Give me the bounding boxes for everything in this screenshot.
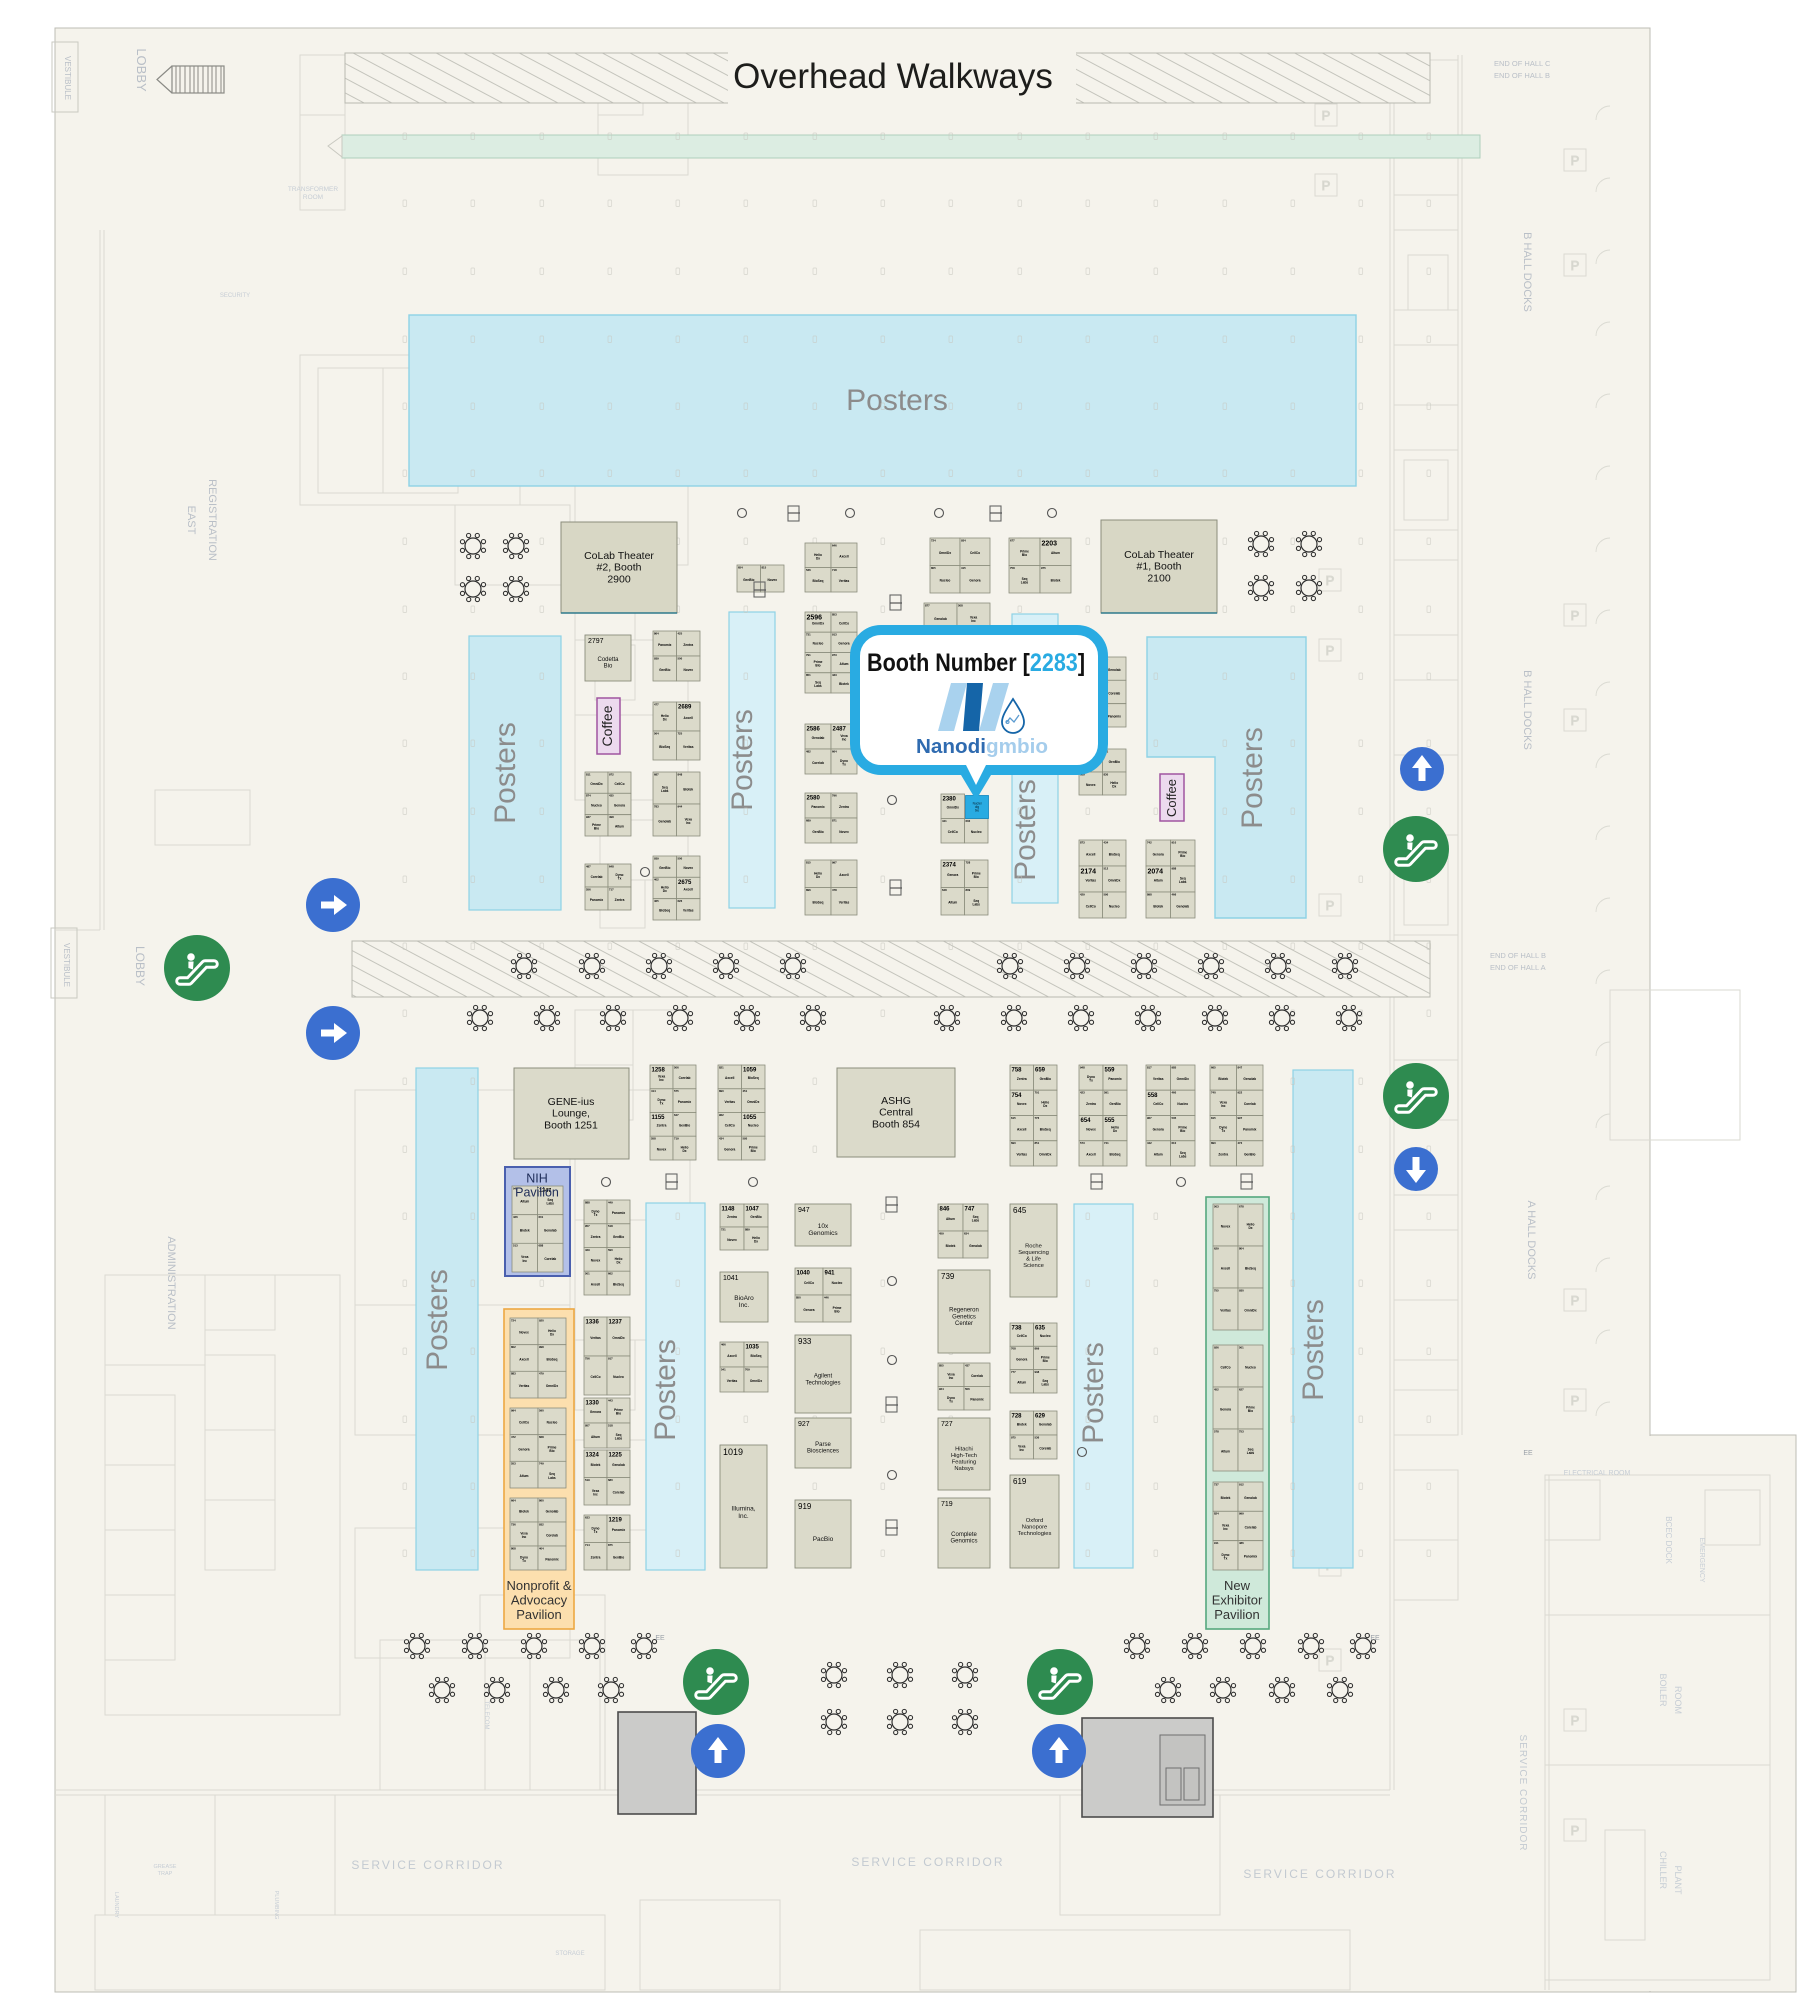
svg-text:CellCo: CellCo [1086, 904, 1096, 908]
svg-text:#2, Booth: #2, Booth [597, 562, 642, 574]
svg-text:741: 741 [1104, 1141, 1109, 1145]
svg-text:Dx: Dx [550, 1332, 554, 1336]
svg-text:A HALL DOCKS: A HALL DOCKS [1525, 1200, 1537, 1279]
svg-text:Altum: Altum [1051, 551, 1060, 555]
svg-text:OmniDx: OmniDx [612, 1336, 624, 1340]
svg-text:851: 851 [806, 673, 811, 677]
svg-text:Labs: Labs [547, 1201, 555, 1205]
svg-text:967: 967 [1147, 1116, 1152, 1120]
svg-text:GENE-ius: GENE-ius [548, 1096, 595, 1108]
svg-text:P: P [1326, 898, 1335, 913]
svg-text:482: 482 [806, 749, 811, 753]
svg-text:2797: 2797 [588, 638, 604, 645]
svg-text:Nucleo: Nucleo [613, 1375, 624, 1379]
svg-text:500: 500 [678, 656, 683, 660]
svg-text:873: 873 [1080, 840, 1085, 844]
svg-text:487: 487 [586, 864, 591, 868]
svg-text:BOILER: BOILER [1658, 1673, 1668, 1707]
svg-text:Labs: Labs [972, 1219, 980, 1223]
svg-text:758: 758 [1010, 566, 1015, 570]
svg-text:680: 680 [608, 1478, 613, 1482]
svg-text:CellCo: CellCo [614, 782, 624, 786]
svg-text:Altum: Altum [1154, 878, 1163, 882]
svg-text:437: 437 [965, 1363, 970, 1367]
svg-text:2074: 2074 [1148, 869, 1164, 876]
svg-text:601: 601 [539, 1215, 544, 1219]
svg-text:Bio: Bio [594, 826, 599, 830]
svg-text:High-Tech: High-Tech [951, 1453, 977, 1459]
svg-text:VESTIBULE: VESTIBULE [63, 56, 72, 100]
svg-text:Nucleo: Nucleo [748, 1124, 759, 1128]
svg-text:477: 477 [654, 702, 659, 706]
svg-text:Booth Number [2283]: Booth Number [2283] [867, 649, 1085, 677]
svg-text:#1, Booth: #1, Booth [1137, 561, 1182, 573]
svg-text:Genomics: Genomics [808, 1230, 838, 1237]
svg-text:Posters: Posters [489, 722, 522, 824]
svg-text:Genolab: Genolab [1243, 1077, 1256, 1081]
svg-text:709: 709 [745, 1367, 750, 1371]
svg-text:Axcell: Axcell [725, 1076, 735, 1080]
svg-text:1330: 1330 [586, 1401, 600, 1407]
svg-text:Axcell: Axcell [1086, 852, 1096, 856]
svg-text:Posters: Posters [421, 1269, 454, 1371]
svg-text:PLANT: PLANT [1673, 1865, 1683, 1895]
svg-text:Genolab: Genolab [1039, 1422, 1052, 1426]
svg-text:948: 948 [1080, 1065, 1085, 1069]
svg-text:423: 423 [1080, 1091, 1085, 1095]
svg-text:OmniDx: OmniDx [747, 1100, 759, 1104]
svg-text:Novex: Novex [519, 1331, 529, 1335]
svg-text:Nucleo: Nucleo [1109, 904, 1120, 908]
svg-text:GenBio: GenBio [659, 668, 670, 672]
svg-text:442: 442 [1147, 1141, 1152, 1145]
svg-text:910: 910 [1172, 840, 1177, 844]
svg-text:B HALL DOCKS: B HALL DOCKS [1521, 232, 1533, 312]
svg-text:648: 648 [609, 864, 614, 868]
svg-text:615: 615 [1011, 1116, 1016, 1120]
svg-text:Panomix: Panomix [590, 898, 604, 902]
svg-text:Axcell: Axcell [839, 873, 849, 877]
svg-text:Labs: Labs [661, 789, 669, 793]
svg-text:Labs: Labs [1179, 1154, 1187, 1158]
svg-text:962: 962 [719, 1113, 724, 1117]
svg-text:Complete: Complete [951, 1532, 977, 1538]
svg-text:1258: 1258 [652, 1068, 666, 1074]
svg-text:595: 595 [743, 1137, 748, 1141]
svg-text:Tx: Tx [618, 877, 622, 881]
svg-text:Zentra: Zentra [1017, 1077, 1027, 1081]
svg-text:VESTIBULE: VESTIBULE [62, 943, 71, 987]
svg-text:815: 815 [1211, 1116, 1216, 1120]
svg-text:Zentra: Zentra [615, 898, 625, 902]
svg-text:472: 472 [511, 1435, 516, 1439]
svg-text:P: P [1571, 153, 1580, 168]
svg-text:Veritas: Veritas [590, 1336, 601, 1340]
svg-text:678: 678 [1239, 1204, 1244, 1208]
svg-text:973: 973 [832, 653, 837, 657]
svg-text:& Life: & Life [1026, 1257, 1041, 1263]
svg-text:Center: Center [955, 1321, 973, 1327]
svg-text:Veritas: Veritas [725, 1100, 736, 1104]
svg-text:Genora: Genora [1220, 1407, 1231, 1411]
svg-text:BioSeq: BioSeq [813, 579, 824, 583]
svg-text:BioSeq: BioSeq [813, 901, 824, 905]
svg-text:Bio: Bio [549, 1449, 554, 1453]
svg-text:Corelab: Corelab [1039, 1446, 1051, 1450]
svg-text:GenBio: GenBio [812, 830, 823, 834]
svg-text:Labs: Labs [814, 684, 822, 688]
svg-text:512: 512 [1104, 866, 1109, 870]
svg-text:518: 518 [608, 1224, 613, 1228]
svg-text:P: P [1571, 1293, 1580, 1308]
svg-text:EE: EE [1523, 1450, 1533, 1457]
svg-text:Novex: Novex [683, 668, 693, 672]
svg-text:Veritas: Veritas [1220, 1308, 1231, 1312]
svg-text:740: 740 [1211, 1091, 1216, 1095]
svg-text:2374: 2374 [943, 863, 957, 869]
svg-text:Novex: Novex [767, 578, 777, 582]
svg-text:664: 664 [832, 749, 837, 753]
svg-text:634: 634 [964, 1231, 969, 1235]
svg-text:999: 999 [1239, 1512, 1244, 1516]
svg-text:501: 501 [585, 1272, 590, 1276]
svg-text:Featuring: Featuring [952, 1459, 977, 1465]
svg-text:Altum: Altum [519, 1474, 528, 1478]
svg-text:Nanopore: Nanopore [1022, 1524, 1047, 1530]
svg-text:Panomix: Panomix [612, 1211, 626, 1215]
svg-text:Novex: Novex [1017, 1102, 1027, 1106]
svg-text:TRANSFORMER: TRANSFORMER [288, 186, 339, 193]
svg-text:Tx: Tx [949, 1399, 953, 1403]
svg-text:535: 535 [1172, 1116, 1177, 1120]
svg-text:Tx: Tx [1089, 1079, 1093, 1083]
svg-text:CoLab Theater: CoLab Theater [1124, 549, 1194, 561]
svg-text:GenBio: GenBio [1040, 1077, 1051, 1081]
svg-text:972: 972 [609, 772, 614, 776]
svg-text:EE: EE [655, 1635, 665, 1642]
svg-text:Genora: Genora [1153, 852, 1164, 856]
svg-text:860: 860 [539, 1498, 544, 1502]
svg-text:Inc: Inc [522, 1535, 527, 1539]
svg-text:CellCo: CellCo [839, 621, 849, 625]
svg-text:Corelab: Corelab [1245, 1525, 1257, 1529]
svg-text:Corelab: Corelab [1108, 691, 1120, 695]
svg-text:460: 460 [1172, 1091, 1177, 1095]
svg-text:Nucleo: Nucleo [971, 830, 982, 834]
svg-text:635: 635 [1035, 1326, 1046, 1332]
svg-text:912: 912 [1239, 1482, 1244, 1486]
svg-text:GenBio: GenBio [659, 866, 670, 870]
svg-text:Biotek: Biotek [946, 1244, 956, 1248]
svg-text:791: 791 [806, 653, 811, 657]
svg-text:941: 941 [825, 1271, 836, 1277]
svg-text:498: 498 [609, 815, 614, 819]
svg-text:Genolab: Genolab [544, 1228, 557, 1232]
svg-text:736: 736 [511, 1522, 516, 1526]
svg-text:BioSeq: BioSeq [547, 1357, 558, 1361]
svg-text:664: 664 [511, 1498, 516, 1502]
svg-text:END OF HALL B: END OF HALL B [1494, 71, 1550, 80]
svg-text:541: 541 [721, 1367, 726, 1371]
svg-text:OmniDx: OmniDx [1244, 1308, 1256, 1312]
svg-text:Zentra: Zentra [727, 1215, 737, 1219]
svg-text:719: 719 [941, 1501, 953, 1508]
svg-text:654: 654 [738, 565, 743, 569]
svg-text:466: 466 [721, 1342, 726, 1346]
svg-text:Pavilion: Pavilion [1214, 1607, 1260, 1622]
svg-text:749: 749 [539, 1462, 544, 1466]
svg-text:777: 777 [1011, 1370, 1016, 1374]
svg-text:Biosciences: Biosciences [807, 1449, 839, 1455]
svg-text:687: 687 [654, 772, 659, 776]
svg-text:Regeneron: Regeneron [949, 1308, 979, 1314]
svg-text:Agilent: Agilent [814, 1374, 833, 1380]
svg-text:472: 472 [1238, 1141, 1243, 1145]
svg-text:1237: 1237 [609, 1320, 623, 1326]
svg-text:659: 659 [1035, 1068, 1046, 1074]
svg-text:519: 519 [585, 1478, 590, 1482]
svg-text:Coffee: Coffee [1164, 779, 1179, 817]
svg-text:874: 874 [586, 794, 591, 798]
svg-text:BioSeq: BioSeq [1109, 852, 1120, 856]
svg-text:Genetics: Genetics [952, 1314, 976, 1320]
svg-text:BioSeq: BioSeq [751, 1354, 762, 1358]
svg-text:590: 590 [1104, 892, 1109, 896]
svg-text:Labs: Labs [1247, 1451, 1255, 1455]
svg-text:Genomics: Genomics [950, 1539, 977, 1545]
svg-text:SECURITY: SECURITY [220, 293, 250, 299]
svg-text:Genolab: Genolab [1176, 904, 1189, 908]
svg-text:975: 975 [1041, 566, 1046, 570]
svg-text:ROOM: ROOM [1673, 1686, 1683, 1714]
svg-text:REGISTRATION: REGISTRATION [206, 479, 218, 561]
svg-text:OmniDx: OmniDx [1108, 878, 1120, 882]
svg-text:Technologies: Technologies [805, 1380, 840, 1386]
svg-text:END OF HALL A: END OF HALL A [1490, 963, 1546, 972]
svg-text:564: 564 [654, 731, 659, 735]
svg-text:New: New [1224, 1578, 1251, 1593]
svg-text:END OF HALL B: END OF HALL B [1490, 951, 1546, 960]
svg-text:Booth 854: Booth 854 [872, 1118, 920, 1130]
svg-text:Dx: Dx [663, 718, 667, 722]
svg-text:Inc: Inc [659, 1078, 664, 1082]
svg-text:CoLab Theater: CoLab Theater [584, 550, 654, 562]
svg-text:452: 452 [1214, 1387, 1219, 1391]
svg-text:Axcell: Axcell [591, 1282, 601, 1286]
svg-text:Altum: Altum [615, 825, 624, 829]
svg-text:Panomix: Panomix [612, 1528, 626, 1532]
svg-text:Dx: Dx [663, 889, 667, 893]
svg-text:Veritas: Veritas [839, 579, 850, 583]
svg-text:Veritas: Veritas [1086, 878, 1097, 882]
svg-text:Inc: Inc [1019, 1448, 1024, 1452]
svg-text:486: 486 [1239, 1541, 1244, 1545]
svg-text:Corelab: Corelab [546, 1533, 558, 1537]
svg-text:Biotek: Biotek [1017, 1422, 1027, 1426]
svg-text:Tx: Tx [842, 763, 846, 767]
svg-text:Altum: Altum [946, 1217, 955, 1221]
svg-text:451: 451 [743, 1089, 748, 1093]
svg-text:425: 425 [678, 631, 683, 635]
svg-text:Genora: Genora [803, 1308, 814, 1312]
svg-text:Nucleo: Nucleo [1040, 1334, 1051, 1338]
svg-text:Bio: Bio [751, 1149, 756, 1153]
svg-text:731: 731 [806, 633, 811, 637]
svg-text:728: 728 [1012, 1414, 1023, 1420]
svg-text:Panomix: Panomix [1243, 1127, 1257, 1131]
svg-text:864: 864 [654, 631, 659, 635]
svg-text:805: 805 [931, 566, 936, 570]
svg-text:783: 783 [654, 804, 659, 808]
svg-text:573: 573 [1080, 1141, 1085, 1145]
svg-text:LAUNDRY: LAUNDRY [113, 1892, 119, 1919]
svg-text:Genolab: Genolab [812, 736, 825, 740]
svg-text:Novex: Novex [657, 1147, 667, 1151]
svg-text:BCEC DOCK: BCEC DOCK [1664, 1516, 1673, 1564]
svg-text:933: 933 [798, 1337, 812, 1346]
svg-text:GenBio: GenBio [613, 1556, 624, 1560]
svg-text:404: 404 [539, 1546, 544, 1550]
svg-text:466: 466 [1172, 892, 1177, 896]
svg-text:P: P [1326, 1653, 1335, 1668]
svg-text:Dx: Dx [1043, 1104, 1047, 1108]
svg-text:Dx: Dx [682, 1149, 686, 1153]
svg-text:875: 875 [608, 1543, 613, 1547]
svg-text:2100: 2100 [1147, 572, 1171, 584]
svg-text:626: 626 [678, 899, 683, 903]
svg-text:Corelab: Corelab [1244, 1102, 1256, 1106]
svg-text:1040: 1040 [797, 1271, 811, 1277]
svg-text:815: 815 [806, 860, 811, 864]
svg-text:724: 724 [931, 538, 936, 542]
svg-text:EMERGENCY: EMERGENCY [1698, 1537, 1705, 1582]
svg-text:Bio: Bio [974, 875, 979, 879]
svg-text:EE: EE [1370, 1635, 1380, 1642]
svg-text:bio: bio [975, 809, 979, 813]
svg-text:602: 602 [966, 819, 971, 823]
svg-text:747: 747 [965, 1207, 976, 1213]
svg-text:629: 629 [1214, 1246, 1219, 1250]
svg-text:688: 688 [539, 1244, 544, 1248]
svg-text:TELECOM: TELECOM [483, 1700, 489, 1729]
svg-text:Novex: Novex [1221, 1224, 1231, 1228]
svg-text:896: 896 [806, 888, 811, 892]
svg-text:426: 426 [513, 1215, 518, 1219]
svg-text:Tx: Tx [594, 1213, 598, 1217]
svg-text:811: 811 [586, 772, 591, 776]
svg-text:LOBBY: LOBBY [133, 946, 147, 986]
svg-text:CHILLER: CHILLER [1658, 1851, 1668, 1890]
svg-text:SERVICE CORRIDOR: SERVICE CORRIDOR [351, 1858, 504, 1872]
svg-text:Genolab: Genolab [969, 1244, 982, 1248]
svg-text:OmniDx: OmniDx [1039, 1153, 1051, 1157]
svg-text:506: 506 [965, 1387, 970, 1391]
svg-text:Biotek: Biotek [1153, 904, 1163, 908]
svg-text:1047: 1047 [746, 1207, 760, 1213]
svg-text:Biotek: Biotek [1218, 1077, 1228, 1081]
svg-text:Genora: Genora [947, 873, 958, 877]
svg-text:737: 737 [1214, 1482, 1219, 1486]
svg-text:721: 721 [721, 1227, 726, 1231]
svg-text:2174: 2174 [1081, 869, 1097, 876]
svg-text:Bio: Bio [1180, 854, 1185, 858]
svg-text:648: 648 [942, 888, 947, 892]
svg-text:934: 934 [961, 538, 966, 542]
svg-text:Genora: Genora [969, 579, 980, 583]
svg-text:Sequencing: Sequencing [1018, 1250, 1049, 1256]
svg-text:997: 997 [1238, 1116, 1243, 1120]
svg-text:433: 433 [832, 673, 837, 677]
svg-text:559: 559 [1105, 1068, 1116, 1074]
svg-text:677: 677 [1010, 538, 1015, 542]
svg-text:508: 508 [958, 603, 963, 607]
svg-text:Booth 1251: Booth 1251 [544, 1119, 598, 1131]
svg-text:CellCo: CellCo [948, 830, 958, 834]
svg-text:830: 830 [1104, 772, 1109, 776]
svg-text:Labs: Labs [1042, 1382, 1050, 1386]
svg-text:930: 930 [1239, 1288, 1244, 1292]
svg-text:TRAP: TRAP [158, 1871, 173, 1877]
svg-text:Inc.: Inc. [738, 1513, 749, 1520]
svg-text:646: 646 [832, 543, 837, 547]
svg-text:Veritas: Veritas [519, 1384, 530, 1388]
svg-text:Bio: Bio [616, 1412, 621, 1416]
svg-text:Axcell: Axcell [684, 887, 694, 891]
svg-text:Zentra: Zentra [1086, 1102, 1096, 1106]
svg-text:Science: Science [1023, 1263, 1044, 1269]
svg-text:Biotek: Biotek [1221, 1496, 1231, 1500]
svg-text:689: 689 [806, 818, 811, 822]
svg-text:932: 932 [539, 1522, 544, 1526]
svg-text:CellCo: CellCo [970, 551, 980, 555]
svg-text:1219: 1219 [609, 1518, 623, 1524]
svg-text:BioSeq: BioSeq [613, 1282, 624, 1286]
svg-text:Nucleo: Nucleo [591, 803, 602, 807]
svg-text:890: 890 [719, 1089, 724, 1093]
svg-text:Zentra: Zentra [591, 1556, 601, 1560]
svg-text:P: P [1571, 258, 1580, 273]
svg-text:Oxford: Oxford [1026, 1518, 1043, 1524]
svg-text:Hitachi: Hitachi [955, 1446, 973, 1452]
svg-text:EAST: EAST [185, 506, 197, 535]
svg-text:888: 888 [585, 1200, 590, 1204]
svg-text:753: 753 [1239, 1429, 1244, 1433]
svg-text:821: 821 [719, 1065, 724, 1069]
svg-text:947: 947 [798, 1207, 810, 1214]
svg-text:2689: 2689 [678, 705, 692, 711]
svg-text:Altum: Altum [1154, 1153, 1163, 1157]
svg-text:Panomix: Panomix [658, 643, 672, 647]
svg-text:443: 443 [608, 1398, 613, 1402]
svg-text:P: P [1571, 1823, 1580, 1838]
svg-text:Nucleo: Nucleo [813, 642, 824, 646]
svg-text:939: 939 [654, 856, 659, 860]
svg-text:Panomix: Panomix [545, 1557, 559, 1561]
svg-text:913: 913 [832, 633, 837, 637]
svg-text:Zentra: Zentra [591, 1235, 601, 1239]
svg-text:755: 755 [1214, 1288, 1219, 1292]
svg-text:555: 555 [1105, 1118, 1116, 1124]
svg-text:Biotek: Biotek [520, 1228, 530, 1232]
svg-text:429: 429 [1080, 892, 1085, 896]
svg-text:Veritas: Veritas [1017, 1153, 1028, 1157]
svg-text:917: 917 [608, 1356, 613, 1360]
svg-text:1055: 1055 [743, 1115, 757, 1121]
svg-text:ROOM: ROOM [303, 194, 323, 201]
svg-text:Novex: Novex [591, 1259, 601, 1263]
svg-text:727: 727 [941, 1421, 953, 1428]
svg-text:591: 591 [1104, 1091, 1109, 1095]
